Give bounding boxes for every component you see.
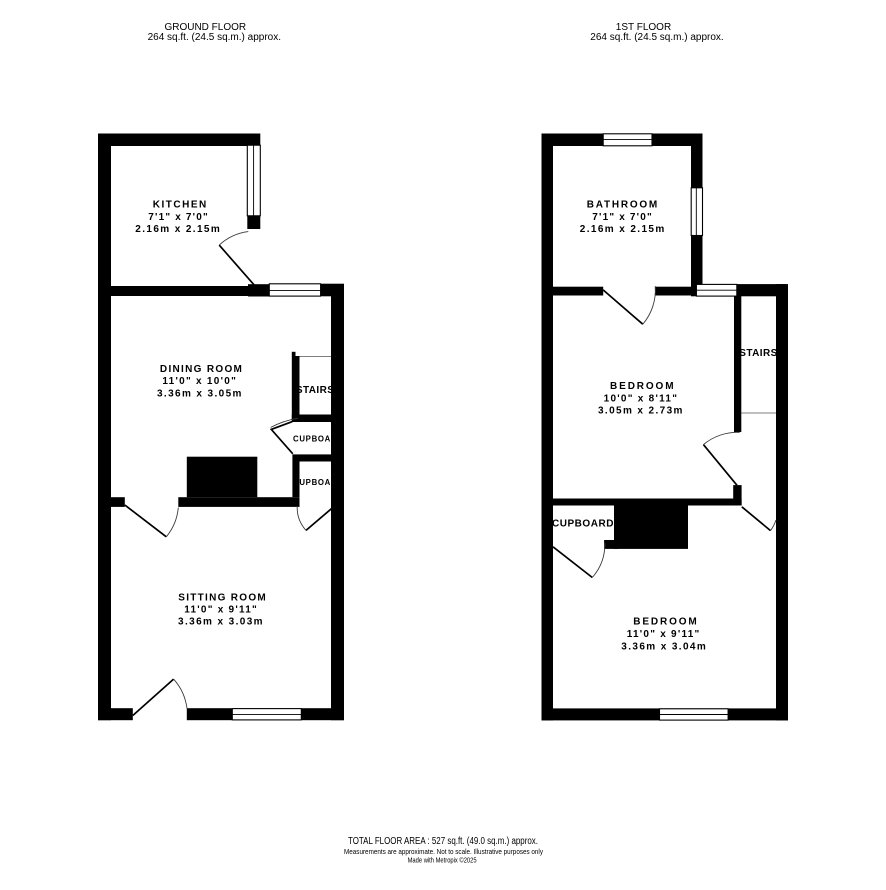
svg-text:2.16m x 2.15m: 2.16m x 2.15m [580, 224, 665, 235]
svg-text:3.05m x 2.73m: 3.05m x 2.73m [598, 406, 683, 417]
svg-text:STAIRS: STAIRS [296, 385, 334, 396]
svg-text:3.36m x 3.04m: 3.36m x 3.04m [621, 642, 706, 653]
svg-text:SITTING ROOM: SITTING ROOM [178, 592, 266, 603]
svg-text:Measurements are approximate.: Measurements are approximate. Not to sca… [344, 847, 543, 856]
svg-text:10'0" x 8'11": 10'0" x 8'11" [604, 393, 678, 404]
svg-text:7'1" x 7'0": 7'1" x 7'0" [592, 212, 652, 223]
svg-text:TOTAL FLOOR AREA : 527 sq.ft.: TOTAL FLOOR AREA : 527 sq.ft. (49.0 sq.m… [348, 836, 538, 847]
svg-text:BATHROOM: BATHROOM [587, 200, 658, 211]
svg-text:CUPBOARD: CUPBOARD [552, 519, 614, 530]
svg-text:DINING ROOM: DINING ROOM [160, 364, 242, 375]
svg-text:KITCHEN: KITCHEN [153, 200, 207, 211]
svg-text:11'0" x 10'0": 11'0" x 10'0" [162, 376, 236, 387]
svg-text:264 sq.ft. (24.5 sq.m.) approx: 264 sq.ft. (24.5 sq.m.) approx. [590, 32, 723, 43]
svg-text:264 sq.ft. (24.5 sq.m.) approx: 264 sq.ft. (24.5 sq.m.) approx. [148, 32, 281, 43]
svg-text:3.36m x 3.03m: 3.36m x 3.03m [178, 617, 263, 628]
svg-text:7'1" x 7'0": 7'1" x 7'0" [148, 212, 208, 223]
svg-text:11'0" x 9'11": 11'0" x 9'11" [184, 605, 257, 616]
svg-text:STAIRS: STAIRS [739, 348, 777, 359]
svg-text:11'0" x 9'11": 11'0" x 9'11" [627, 629, 700, 640]
svg-text:2.16m x 2.15m: 2.16m x 2.15m [135, 224, 220, 235]
svg-text:3.36m x 3.05m: 3.36m x 3.05m [157, 388, 242, 399]
svg-text:Made with Metropix ©2025: Made with Metropix ©2025 [408, 856, 477, 865]
